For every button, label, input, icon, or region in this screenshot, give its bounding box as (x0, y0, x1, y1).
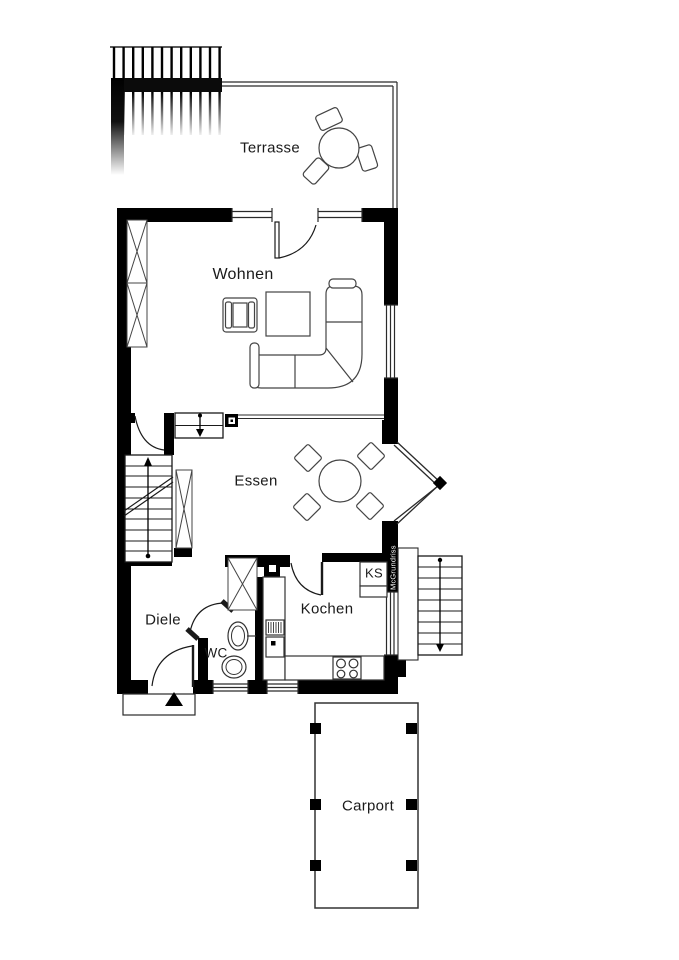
room-label-carport: Carport (342, 798, 394, 815)
bay-window (394, 442, 447, 524)
room-label-kochen: Kochen (301, 601, 354, 618)
door-stairhall-icon (135, 416, 164, 450)
washbasin-icon (228, 622, 256, 650)
coffee-table-icon (266, 292, 310, 336)
door-wc-icon (187, 601, 233, 639)
entrance (123, 692, 195, 715)
room-label-essen: Essen (234, 473, 277, 490)
window-top-left-icon (232, 208, 272, 222)
room-label-wc: WC (204, 646, 227, 661)
door-entrance-icon (152, 645, 193, 687)
door-terrace-icon (275, 222, 316, 258)
stove-icon (333, 657, 361, 679)
dining-chair-icon (294, 444, 322, 472)
window-kitchen-bottom-icon (267, 680, 298, 694)
window-top-right-icon (318, 208, 362, 222)
room-label-wohnen: Wohnen (212, 266, 273, 284)
porch-outline (123, 694, 195, 715)
floor-plan: McGrundriss Terrasse Wohnen Essen Kochen… (0, 0, 679, 960)
watermark-text: McGrundriss (389, 545, 398, 590)
kitchen-corner-block (264, 561, 280, 577)
floor-plan-drawing: McGrundriss (0, 0, 679, 960)
fridge-counter (360, 586, 387, 597)
pergola-hatching (108, 47, 226, 175)
dish-drainer-icon (266, 620, 284, 635)
railing-post (225, 414, 238, 427)
dining-table-icon (319, 460, 361, 502)
living-room-furniture (223, 279, 362, 388)
interior-staircase (124, 455, 173, 562)
window-kitchen-right-icon (384, 592, 398, 655)
split-level-steps (175, 413, 384, 438)
armchair-icon (223, 298, 257, 332)
room-label-terrasse: Terrasse (240, 140, 300, 157)
exterior-staircase (398, 548, 462, 660)
window-wc-bottom-icon (213, 680, 248, 694)
terrace-dining-set (302, 107, 378, 186)
railing (238, 415, 384, 419)
window-living-right-icon (384, 305, 398, 378)
dining-chair-icon (356, 492, 384, 520)
kitchen-shaft-icon (228, 558, 257, 610)
door-kitchen-icon (291, 562, 322, 595)
stair-shaft-icon (176, 470, 192, 548)
terrace-table-icon (319, 128, 359, 168)
room-label-diele: Diele (145, 612, 181, 629)
dining-chair-icon (357, 442, 385, 470)
living-wall-cabinet-icon (127, 220, 147, 347)
dining-set (293, 442, 385, 521)
dining-chair-icon (293, 493, 321, 521)
room-label-ks: KS (365, 566, 383, 581)
sink-icon (266, 637, 284, 657)
